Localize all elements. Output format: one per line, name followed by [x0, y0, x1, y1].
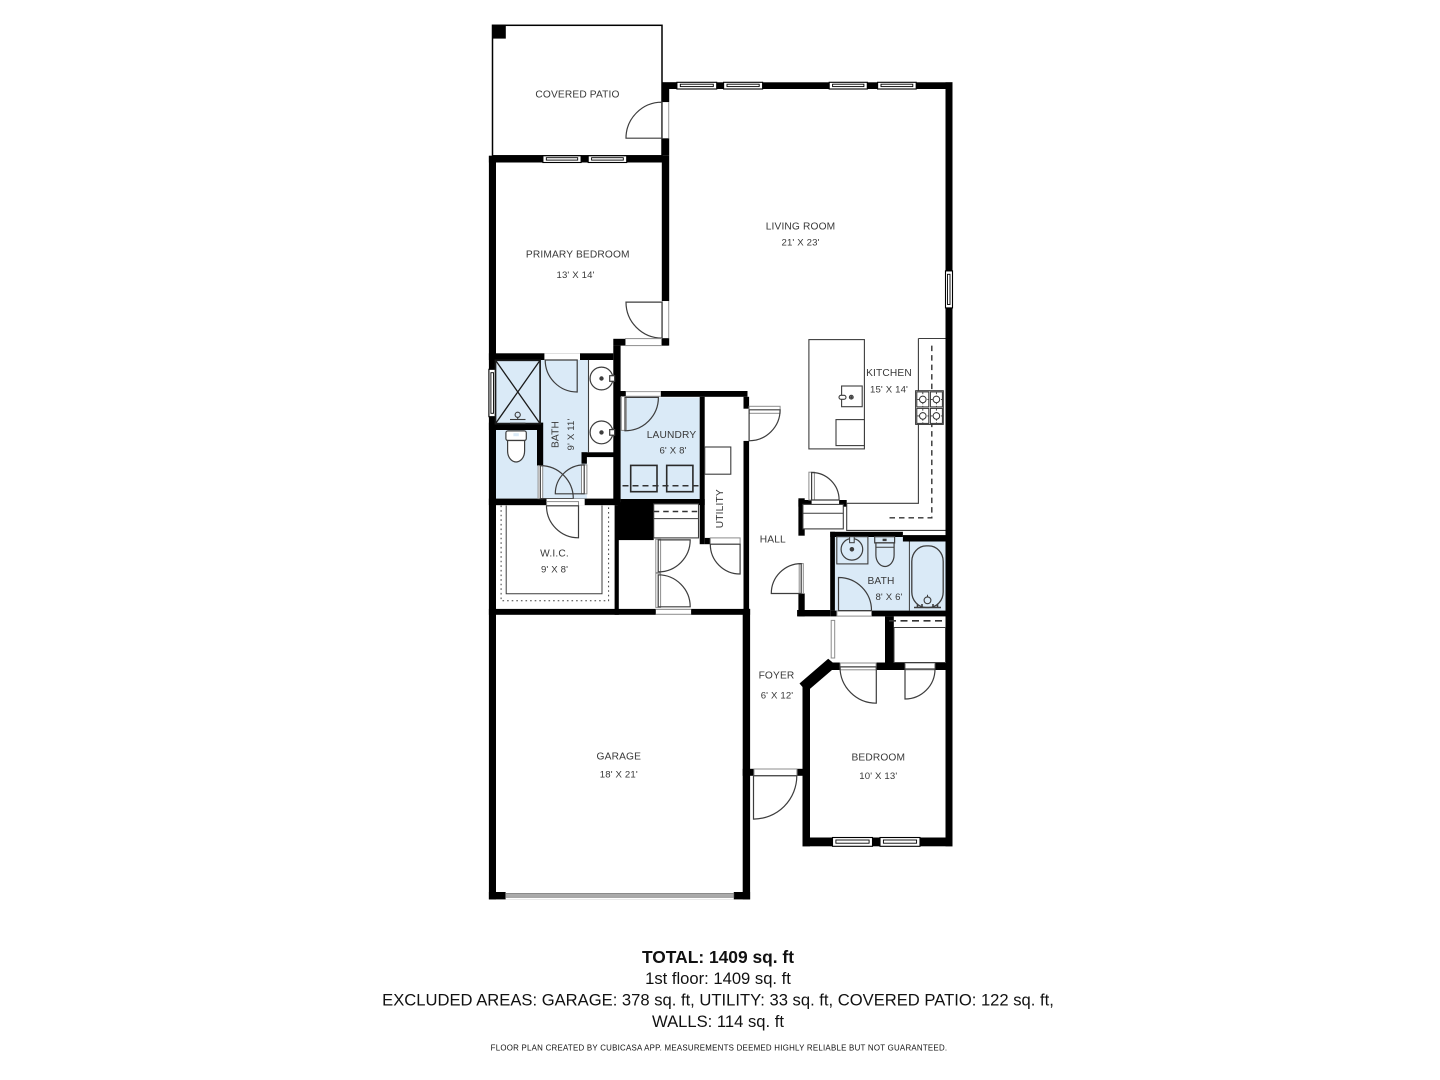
svg-text:WALLS: 114 sq. ft: WALLS: 114 sq. ft	[652, 1012, 784, 1031]
svg-text:10' X 13': 10' X 13'	[859, 771, 897, 782]
svg-text:21' X 23': 21' X 23'	[781, 238, 819, 249]
svg-text:GARAGE: GARAGE	[597, 752, 642, 763]
svg-text:BATH: BATH	[867, 576, 894, 587]
svg-text:13' X 14': 13' X 14'	[556, 270, 594, 281]
svg-text:LIVING ROOM: LIVING ROOM	[766, 222, 836, 233]
svg-text:18' X 21': 18' X 21'	[600, 770, 638, 781]
svg-text:15' X 14': 15' X 14'	[870, 385, 908, 396]
svg-text:LAUNDRY: LAUNDRY	[647, 430, 697, 441]
svg-text:6' X 8': 6' X 8'	[659, 446, 686, 457]
svg-text:PRIMARY BEDROOM: PRIMARY BEDROOM	[526, 250, 630, 261]
svg-text:8' X 6': 8' X 6'	[875, 592, 902, 603]
svg-text:9' X 8': 9' X 8'	[541, 565, 568, 576]
svg-text:FOYER: FOYER	[759, 671, 795, 682]
svg-text:COVERED PATIO: COVERED PATIO	[535, 90, 619, 101]
svg-text:6' X 12': 6' X 12'	[761, 691, 794, 702]
svg-text:9' X 11': 9' X 11'	[566, 419, 577, 451]
svg-text:BATH: BATH	[551, 421, 562, 448]
svg-text:EXCLUDED AREAS: GARAGE: 378 sq: EXCLUDED AREAS: GARAGE: 378 sq. ft, UTIL…	[382, 990, 1054, 1009]
svg-text:KITCHEN: KITCHEN	[866, 368, 912, 379]
svg-text:UTILITY: UTILITY	[715, 489, 726, 528]
svg-text:W.I.C.: W.I.C.	[540, 549, 569, 560]
svg-text:FLOOR PLAN CREATED BY CUBICASA: FLOOR PLAN CREATED BY CUBICASA APP. MEAS…	[491, 1044, 948, 1053]
svg-text:BEDROOM: BEDROOM	[851, 753, 905, 764]
svg-text:1st floor: 1409 sq. ft: 1st floor: 1409 sq. ft	[645, 969, 791, 988]
svg-text:HALL: HALL	[760, 535, 786, 546]
svg-text:TOTAL: 1409 sq. ft: TOTAL: 1409 sq. ft	[642, 947, 794, 967]
